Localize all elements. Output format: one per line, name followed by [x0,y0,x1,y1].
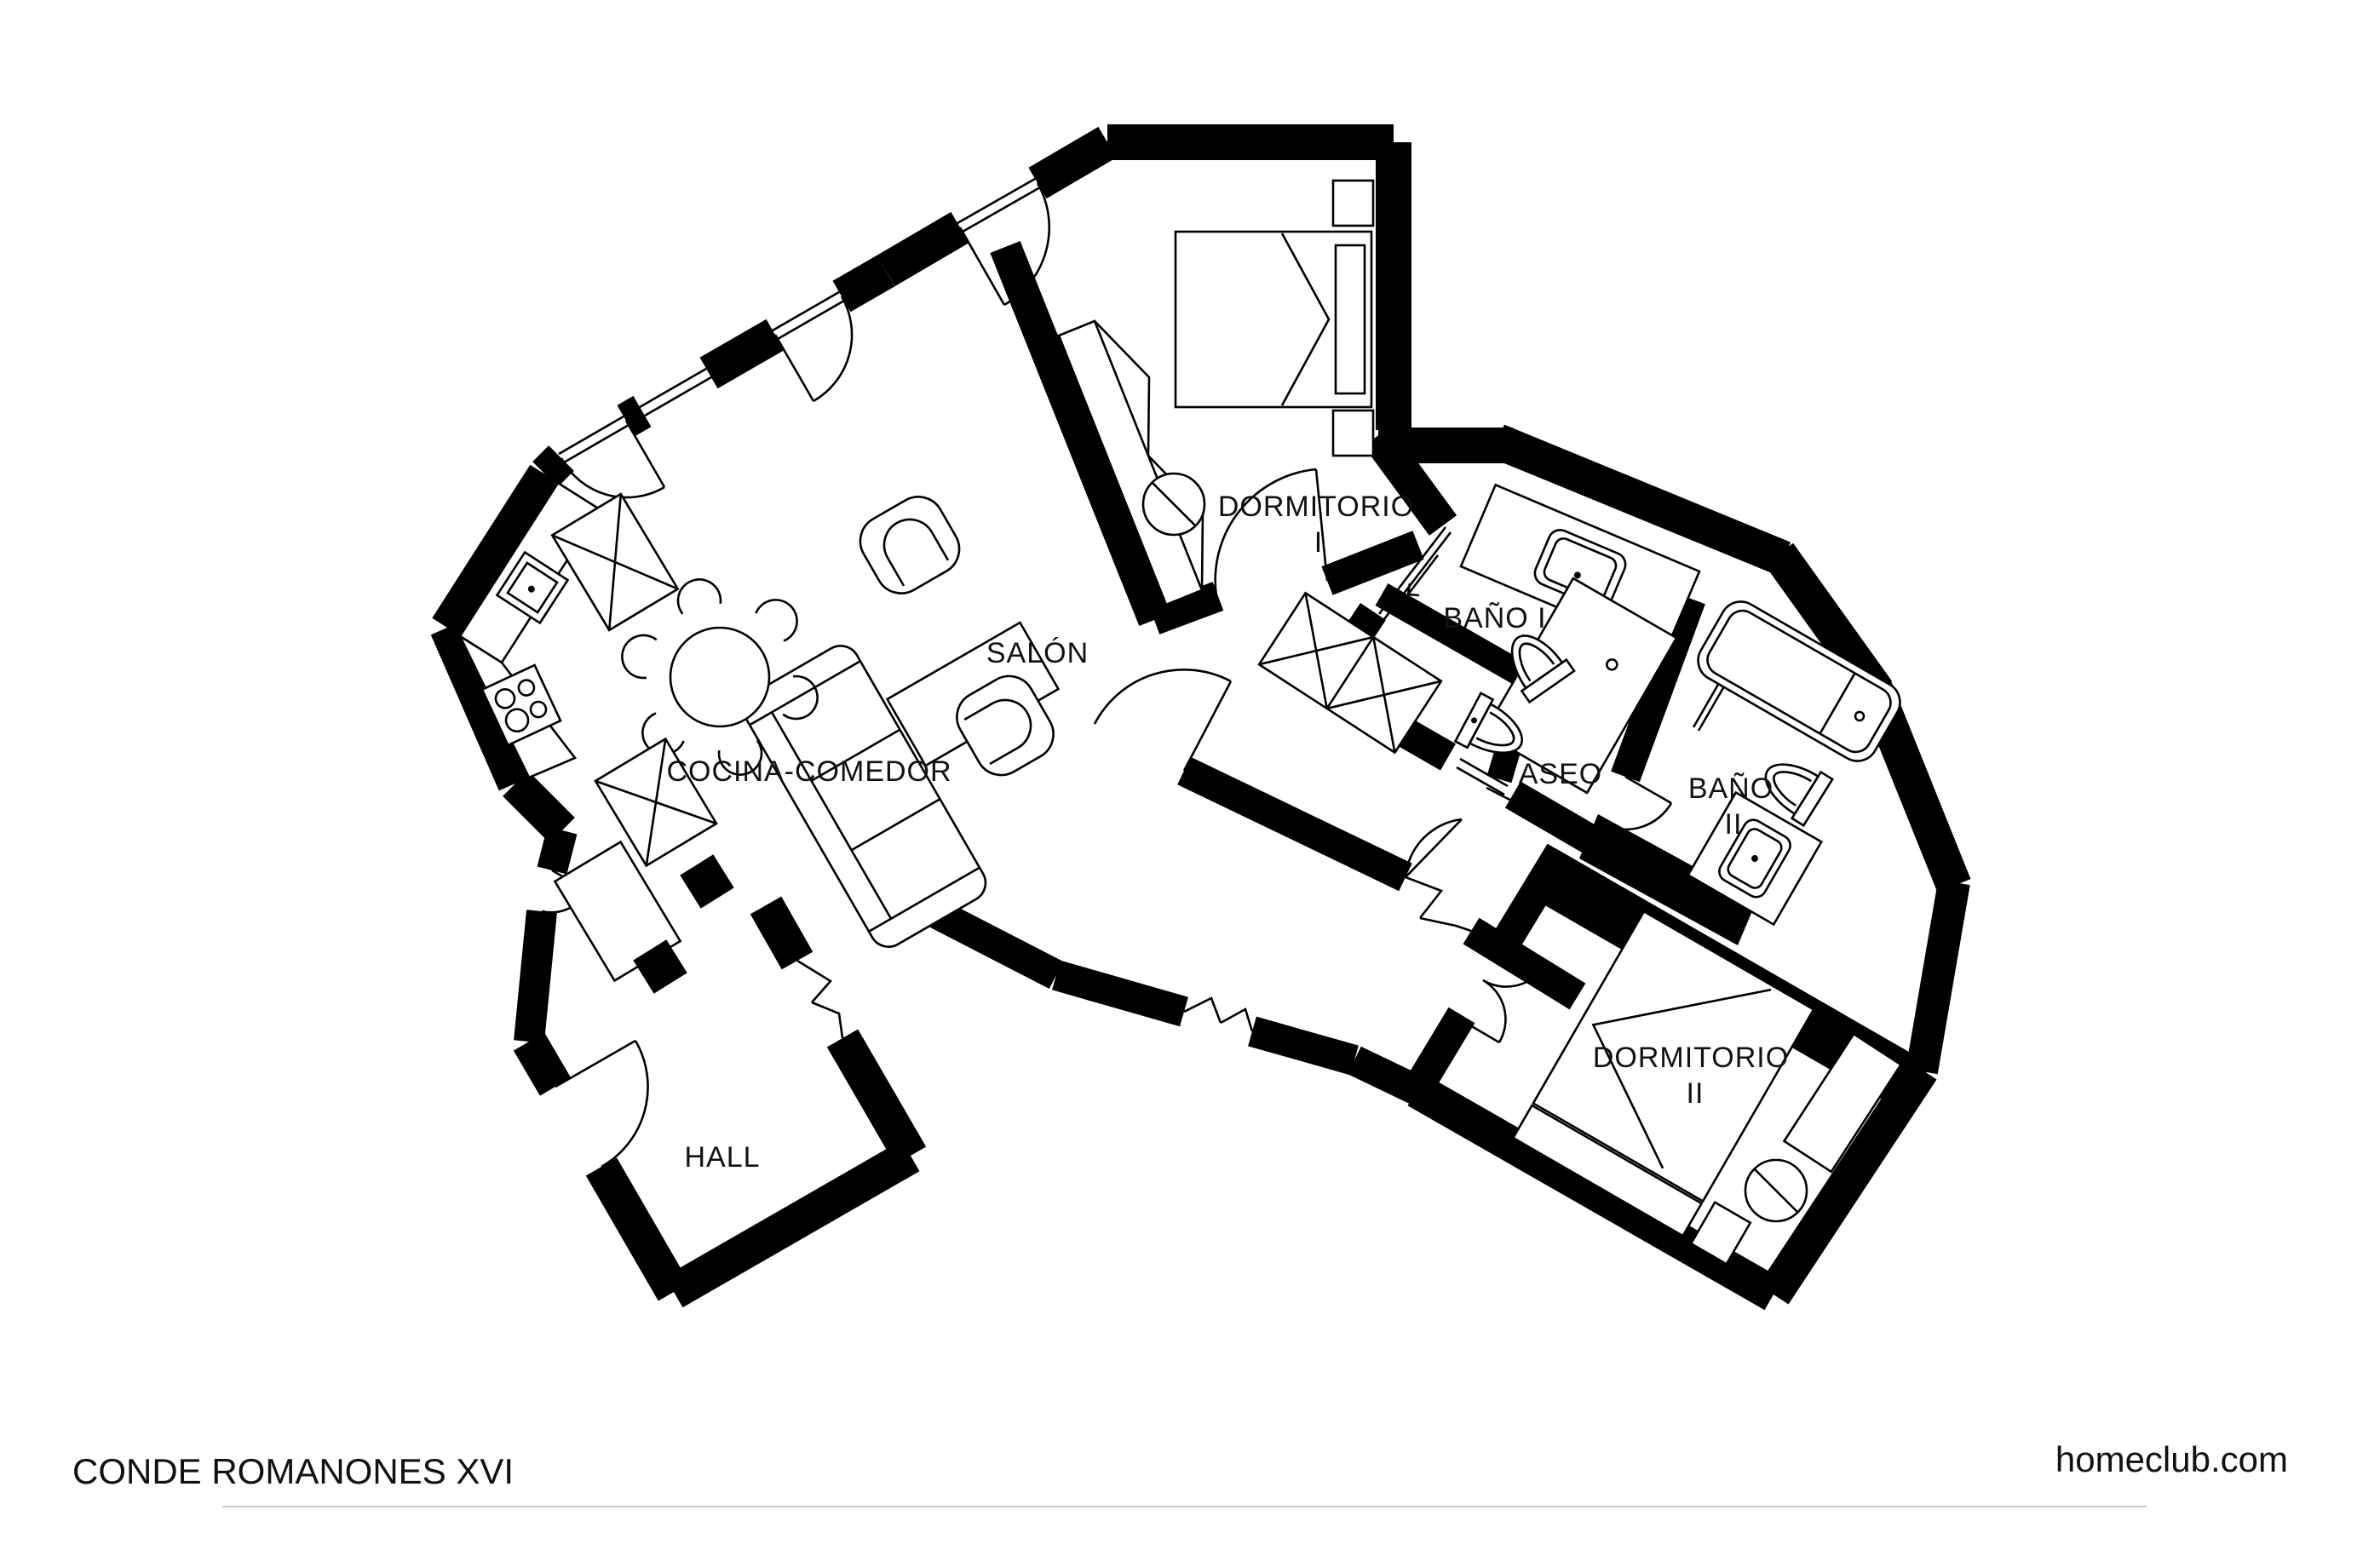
nightstand [1333,181,1373,226]
bathtub-bano-2 [1691,594,1907,769]
room-label-cocina: COCINA-COMEDOR [666,755,951,788]
bed-dormitorio-1 [1176,181,1373,456]
room-label-dormitorio-2: DORMITORIO [1593,1042,1789,1074]
window [559,416,629,462]
nightstand [1333,410,1373,456]
armchair-icon [851,487,969,602]
entry-door-swing [555,1041,648,1167]
room-label-dormitorio-2-line2: II [1687,1077,1705,1110]
bifold-door [1184,998,1252,1031]
wall [842,1038,911,1156]
door-swing [1095,669,1231,771]
floor-plan-canvas: DORMITORIO I BAÑO I ASEO BAÑO II SALÓN C… [0,0,2380,1550]
wall [601,1167,674,1292]
wall [842,271,886,296]
window [957,179,1040,232]
wall [529,1042,555,1087]
chair-dormitorio-1 [1143,474,1204,535]
wall [766,905,797,961]
chair-dormitorio-2 [1745,1160,1807,1221]
bifold-door [797,961,842,1038]
wall [1417,1015,1462,1090]
door-swing [1603,777,1671,830]
footer: CONDE ROMANONES XVI homeclub.com [72,1439,2288,1507]
wall [529,911,542,1042]
room-label-bano-1: BAÑO I [1443,602,1546,634]
room-label-hall: HALL [684,1141,760,1174]
wall [626,411,642,421]
wall [709,335,775,373]
window [640,369,711,416]
wall [552,830,562,870]
towel-bar [1693,683,1724,731]
page: { "document": { "type": "architectural-f… [0,0,2380,1550]
column [680,854,733,908]
room-label-dormitorio-1-line2: I [1314,526,1323,559]
door-swing [1216,469,1327,596]
room-label-dormitorio-1: DORMITORIO [1218,491,1414,523]
wall [515,784,562,830]
wall [1184,771,1406,877]
room-label-bano-2-line2: II [1725,808,1743,841]
door-swing [1406,819,1462,877]
room-label-salon: SALÓN [986,637,1089,669]
room-label-bano-2: BAÑO [1688,772,1774,805]
wall [674,1156,911,1292]
wall [886,227,960,271]
project-title: CONDE ROMANONES XVI [72,1451,514,1491]
wall [1354,1060,1417,1090]
window [773,292,844,339]
room-label-aseo: ASEO [1519,758,1602,790]
door-swing [775,296,852,401]
wall [1922,882,1954,1071]
wall [545,458,561,474]
mattress [1336,245,1365,393]
wall [1252,1031,1354,1060]
brand-link[interactable]: homeclub.com [2055,1439,2288,1479]
wall [1038,142,1107,183]
bifold-door [1406,877,1471,931]
wall [1056,975,1184,1012]
door-swing [561,421,664,497]
wall [1327,545,1418,581]
